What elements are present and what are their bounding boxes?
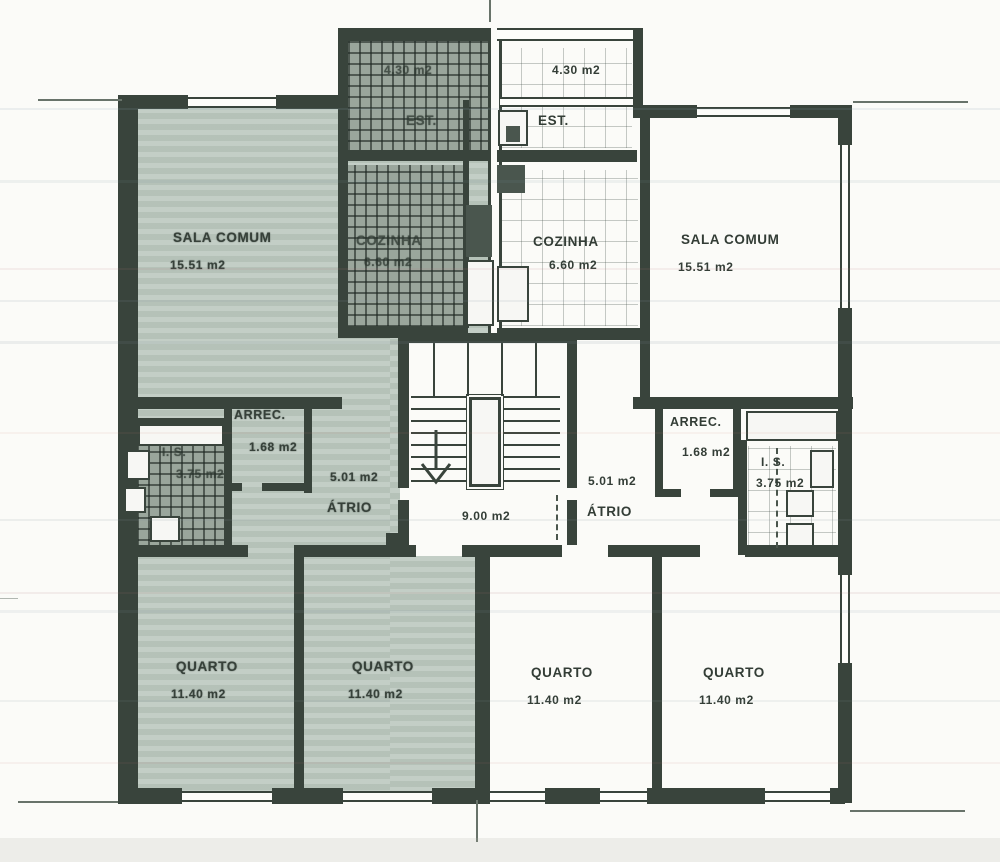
room-area-is-left: 3.75 m2: [176, 468, 224, 481]
kitchen-appliance: [466, 260, 494, 326]
wall: [224, 483, 242, 491]
room-area-sala-comum-left: 15.51 m2: [170, 259, 226, 272]
room-area-is-right: 3.75 m2: [756, 477, 804, 490]
room-label-est-right: EST.: [538, 114, 569, 129]
wall: [710, 489, 741, 497]
wall: [655, 405, 663, 497]
wall: [497, 328, 642, 340]
wall: [647, 788, 765, 804]
room-label-sala-comum-left: SALA COMUM: [173, 231, 272, 246]
party-wall: [475, 545, 490, 790]
room-label-est-left: EST.: [406, 114, 437, 129]
wall: [276, 95, 346, 109]
window: [697, 107, 790, 117]
room-label-arrec-right: ARREC.: [670, 416, 722, 430]
stairwell-wall: [398, 343, 409, 488]
room-area-atrio-left: 5.01 m2: [330, 471, 378, 484]
wall: [490, 545, 562, 557]
room-label-atrio-right: ÁTRIO: [587, 505, 632, 520]
room-area-sala-comum-right: 15.51 m2: [678, 261, 734, 274]
window: [600, 791, 647, 802]
wall: [790, 105, 840, 118]
crop-mark: [0, 598, 18, 599]
stair-direction-arrow: [418, 428, 454, 486]
window: [840, 145, 850, 308]
wall: [545, 788, 600, 804]
room-area-arrec-left: 1.68 m2: [249, 441, 297, 454]
window: [500, 97, 633, 107]
window: [840, 575, 850, 663]
window: [490, 791, 545, 802]
window: [188, 97, 276, 108]
wall: [294, 545, 416, 557]
wall: [640, 112, 650, 400]
wall: [118, 788, 182, 804]
wall: [130, 95, 188, 109]
floor-plan-scan: SALA COMUM 15.51 m2 4.30 m2 EST. COZINHA…: [0, 0, 1000, 862]
crop-mark: [18, 801, 118, 803]
room-area-quarto-left-2: 11.40 m2: [348, 688, 403, 701]
room-area-quarto-right-1: 11.40 m2: [527, 694, 582, 707]
wall: [346, 28, 488, 41]
stair-line: [501, 343, 503, 396]
room-area-atrio-right: 5.01 m2: [588, 475, 636, 488]
crop-mark: [476, 800, 478, 842]
crop-mark: [489, 0, 491, 22]
room-label-arrec-left: ARREC.: [234, 409, 286, 423]
kitchen-appliance: [497, 165, 525, 193]
kitchen-appliance: [466, 205, 492, 257]
scan-edge-shadow: [0, 838, 1000, 862]
room-area-cozinha-left: 6.60 m2: [364, 256, 412, 269]
window: [765, 791, 830, 802]
wall: [294, 557, 304, 790]
wall: [830, 788, 845, 804]
wall: [738, 440, 747, 555]
wall: [338, 28, 348, 337]
crop-mark: [850, 810, 965, 812]
wall: [224, 405, 232, 553]
room-label-cozinha-right: COZINHA: [533, 235, 599, 250]
room-area-est-left: 4.30 m2: [384, 64, 432, 77]
room-area-quarto-left-1: 11.40 m2: [171, 688, 226, 701]
wall: [304, 405, 312, 493]
room-label-atrio-left: ÁTRIO: [327, 501, 372, 516]
wall: [655, 489, 681, 497]
wall: [633, 28, 643, 108]
wall: [262, 483, 312, 491]
toilet-fixture: [124, 487, 146, 513]
wall: [497, 150, 637, 162]
room-label-quarto-right-1: QUARTO: [531, 666, 593, 681]
door-threshold-dash: [556, 495, 558, 540]
bathtub-fixture: [138, 424, 224, 446]
kitchen-appliance: [497, 266, 529, 322]
stair-line: [535, 343, 537, 396]
crop-mark: [853, 101, 968, 103]
toilet-fixture: [786, 490, 814, 517]
wall: [652, 557, 662, 790]
room-label-cozinha-left: COZINHA: [356, 234, 422, 249]
room-area-cozinha-right: 6.60 m2: [549, 259, 597, 272]
wall: [118, 95, 138, 803]
room-label-sala-comum-right: SALA COMUM: [681, 233, 780, 248]
wall: [838, 663, 852, 803]
stair-treads: [504, 396, 560, 482]
room-label-quarto-right-2: QUARTO: [703, 666, 765, 681]
crop-mark: [38, 99, 122, 101]
room-label-quarto-left-1: QUARTO: [176, 660, 238, 675]
sink-fixture: [126, 450, 150, 480]
wall: [838, 308, 852, 575]
window: [182, 791, 272, 802]
wall: [118, 545, 248, 557]
room-area-quarto-right-2: 11.40 m2: [699, 694, 754, 707]
wall: [633, 397, 853, 409]
stair-line: [433, 343, 435, 396]
stair-well: [469, 397, 501, 487]
bidet-fixture: [786, 523, 814, 547]
room-label-quarto-left-2: QUARTO: [352, 660, 414, 675]
stairwell-wall: [386, 533, 400, 546]
stairwell-wall: [567, 500, 577, 545]
bathtub-fixture: [746, 411, 838, 441]
bidet-fixture: [150, 516, 180, 542]
duct-fixture: [506, 126, 520, 142]
stairwell-wall: [567, 343, 577, 488]
stair-landing-area-label: 9.00 m2: [462, 510, 510, 523]
wall: [432, 788, 490, 804]
wall: [272, 788, 343, 804]
wall: [608, 545, 700, 557]
stair-line: [467, 343, 469, 396]
apartment-left-highlight: [390, 556, 477, 796]
room-area-est-right: 4.30 m2: [552, 64, 600, 77]
room-label-is-right: I. S.: [761, 456, 785, 469]
room-area-arrec-right: 1.68 m2: [682, 446, 730, 459]
window: [497, 28, 637, 41]
window: [343, 791, 432, 802]
room-label-is-left: I. S.: [162, 446, 186, 459]
wall: [838, 105, 852, 145]
sink-fixture: [810, 450, 834, 488]
